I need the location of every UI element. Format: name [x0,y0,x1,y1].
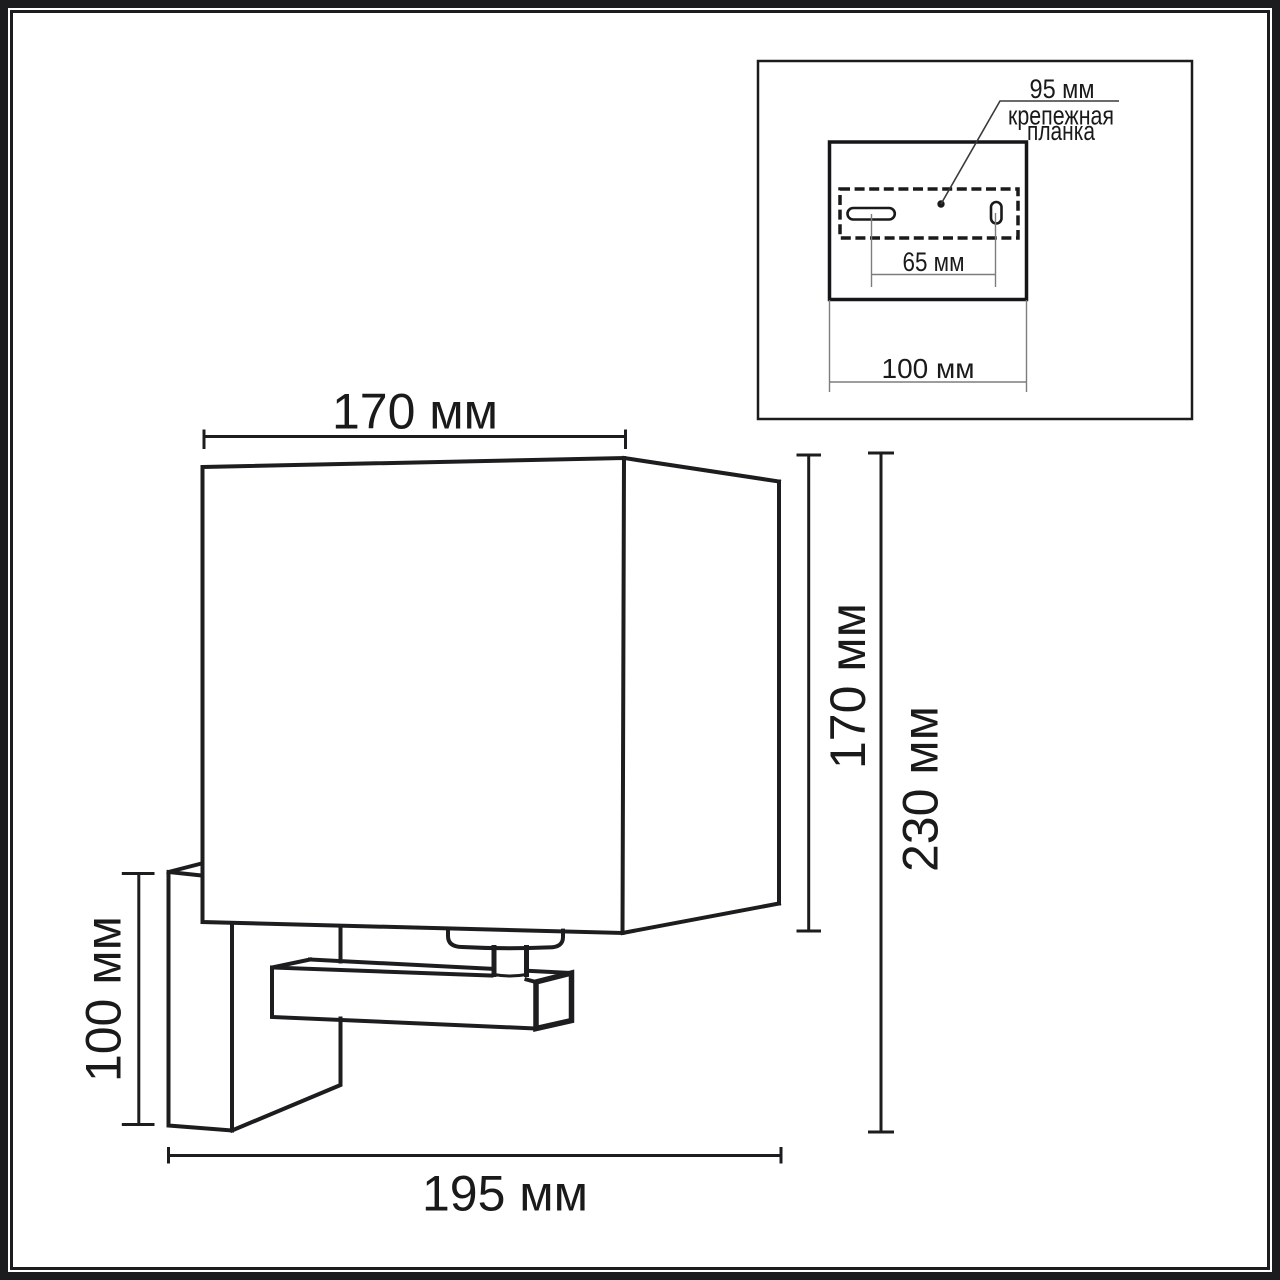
svg-text:170 мм: 170 мм [332,384,498,440]
svg-text:100 мм: 100 мм [76,916,132,1082]
svg-text:95 мм: 95 мм [1030,74,1095,104]
svg-text:195 мм: 195 мм [422,1166,588,1222]
svg-text:65 мм: 65 мм [903,247,965,277]
svg-text:100 мм: 100 мм [882,353,975,384]
svg-text:230 мм: 230 мм [893,706,949,872]
svg-text:планка: планка [1027,116,1096,146]
svg-text:170 мм: 170 мм [820,603,876,769]
